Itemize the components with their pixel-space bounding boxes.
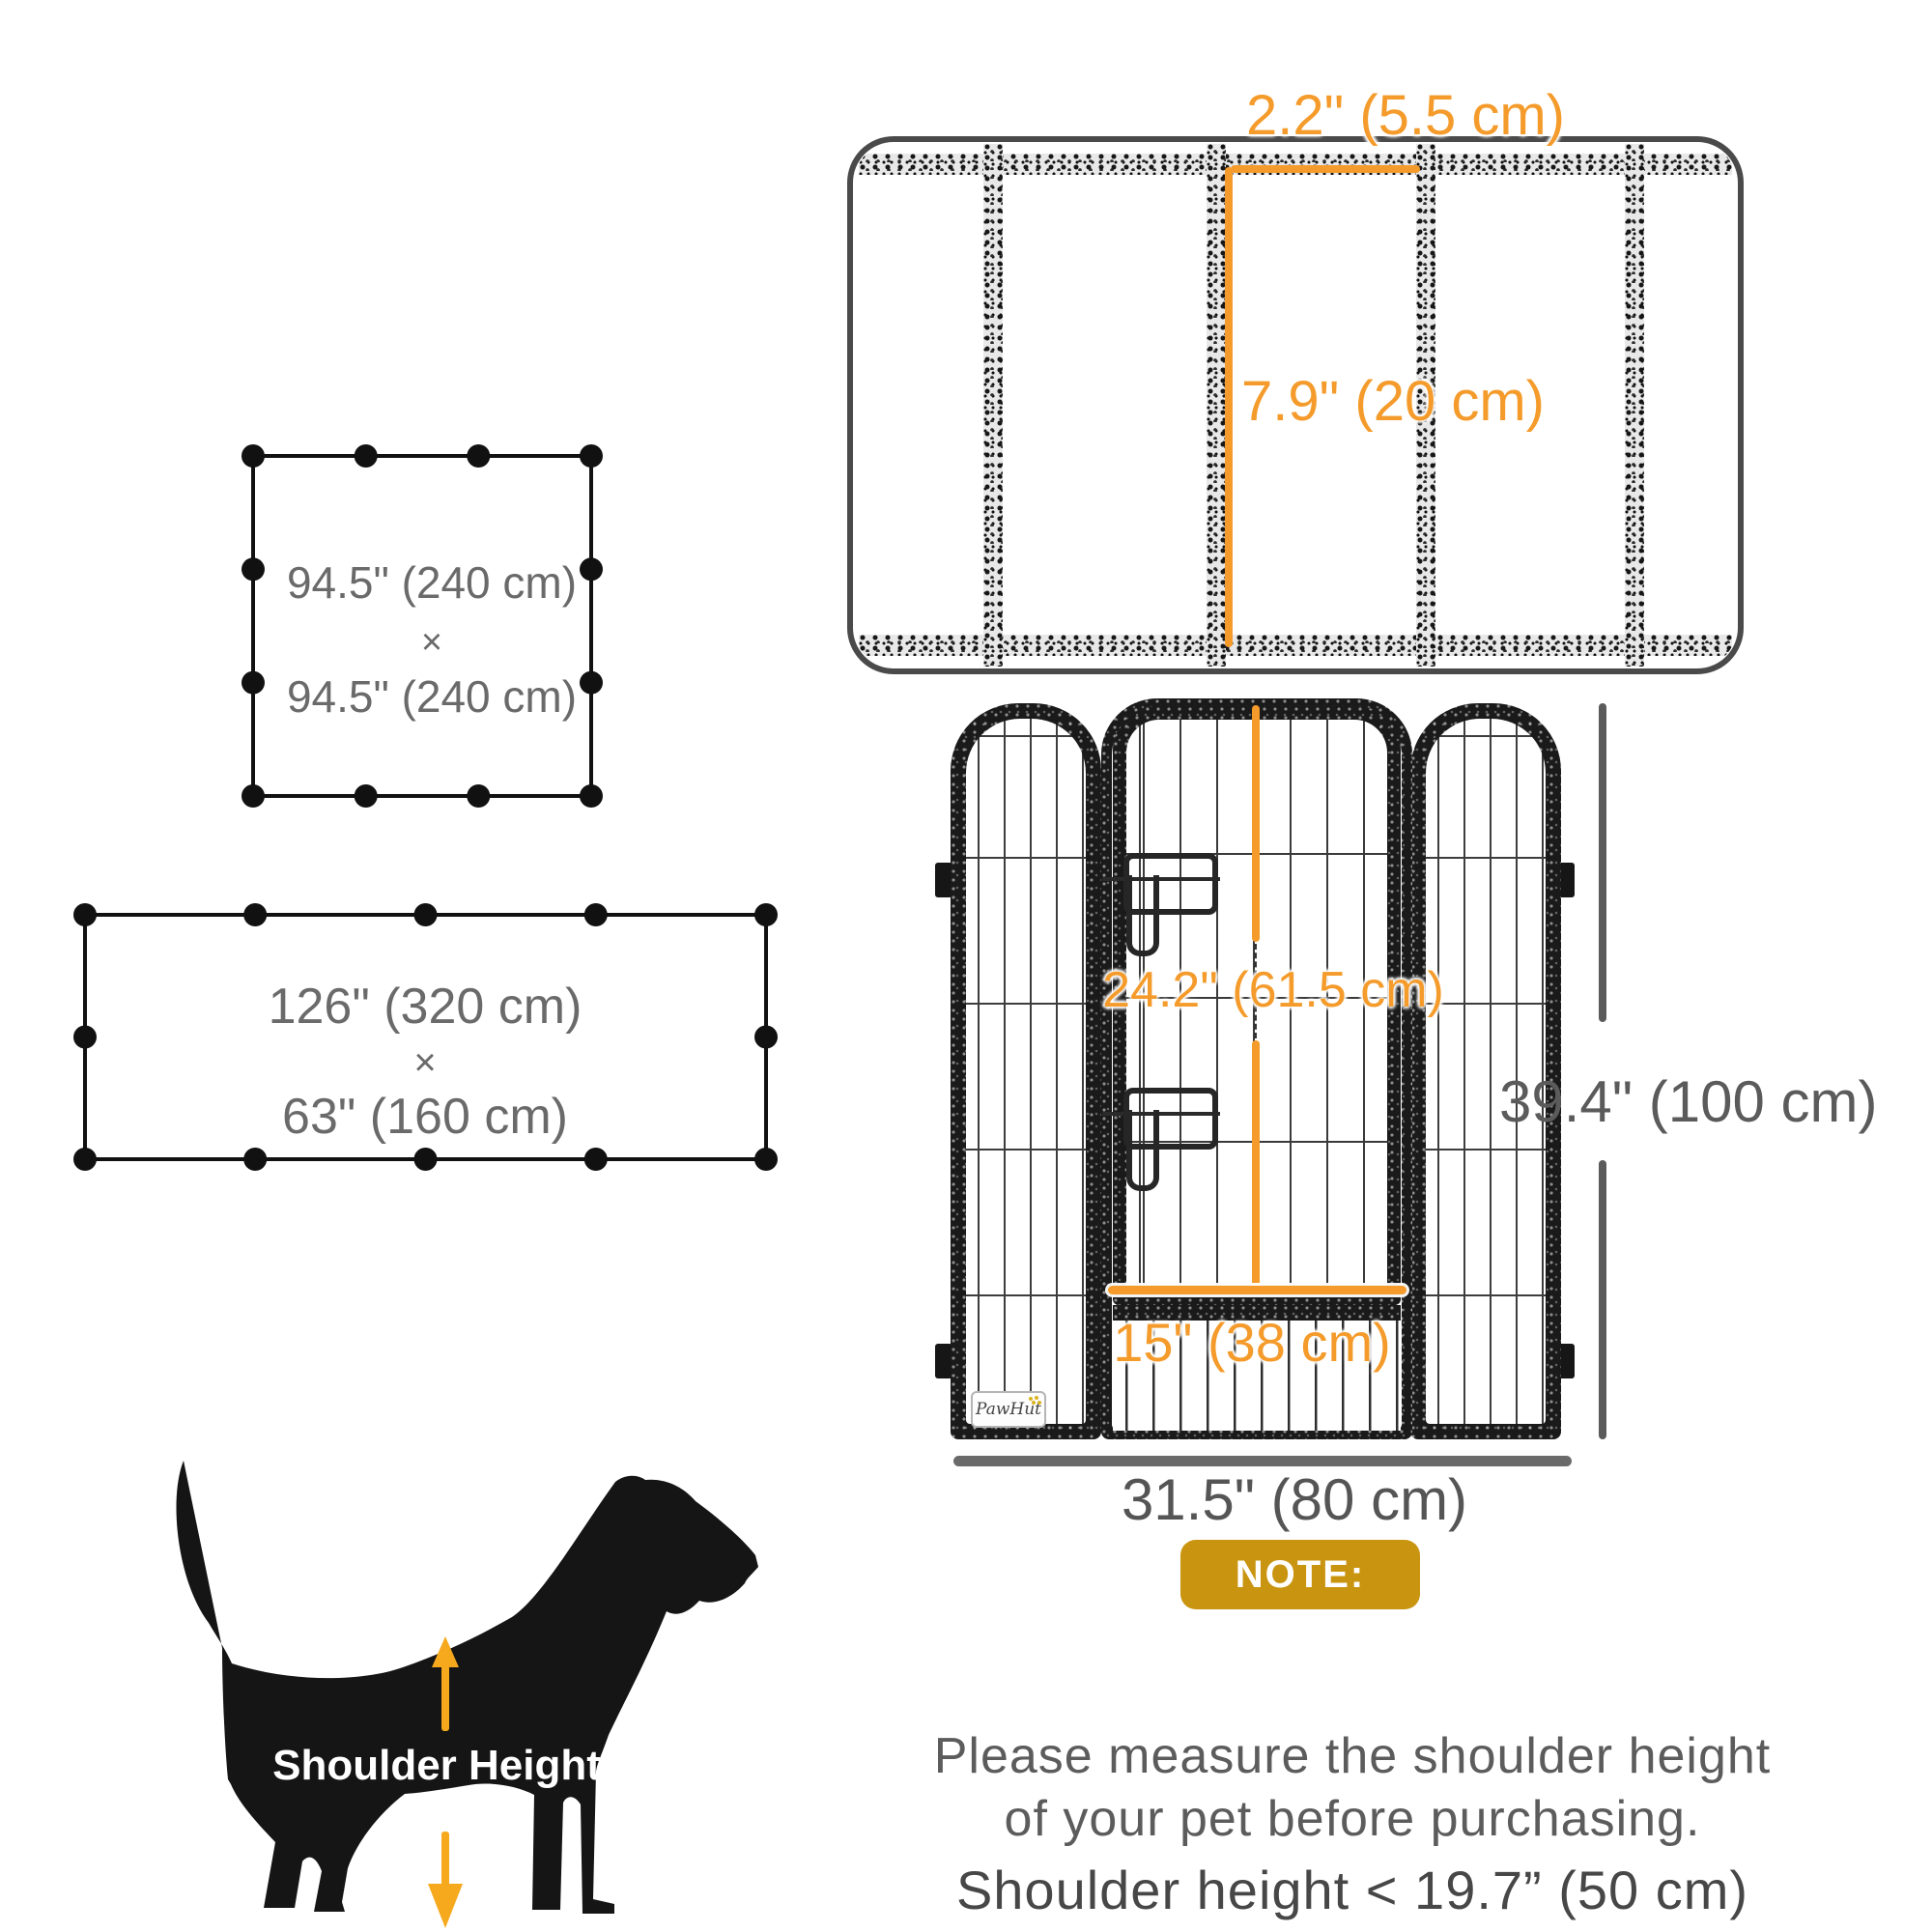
gap-width-measure-line xyxy=(1231,165,1420,173)
rect-width-label: 126" (320 cm) xyxy=(135,978,715,1036)
door-height-label: 24.2" (61.5 cm) xyxy=(983,961,1563,1019)
panel-width-measure-line xyxy=(953,1456,1572,1466)
brand-logo: PawHut xyxy=(971,1391,1046,1428)
panel-height-measure-line-top xyxy=(1599,703,1606,1022)
note-line-2: of your pet before purchasing. xyxy=(773,1790,1932,1848)
gap-width-label: 2.2" (5.5 cm) xyxy=(1116,83,1695,148)
shoulder-height-label: Shoulder Height xyxy=(272,1742,601,1789)
section-height-label: 7.9" (20 cm) xyxy=(1103,369,1683,434)
note-shoulder-height-limit: Shoulder height < 19.7” (50 cm) xyxy=(773,1859,1932,1921)
door-latch-handle xyxy=(1126,875,1159,956)
mesh-vertical-bar xyxy=(983,144,1003,667)
panel-width-label: 31.5" (80 cm) xyxy=(1053,1466,1536,1533)
product-dimension-diagram: 2.2" (5.5 cm) 7.9" (20 cm) 94.5" (240 cm… xyxy=(0,0,1932,1932)
dog-silhouette: Shoulder Height xyxy=(116,1449,792,1932)
rect-height-label: 63" (160 cm) xyxy=(135,1088,715,1146)
square-multiply-sign: × xyxy=(239,622,625,664)
door-height-measure-line-bottom xyxy=(1252,1040,1260,1288)
door-width-measure-line xyxy=(1108,1286,1406,1294)
down-arrow-icon xyxy=(428,1832,463,1928)
dog-body-shape xyxy=(176,1461,758,1914)
brand-logo-text: PawHut xyxy=(976,1400,1041,1419)
square-height-label: 94.5" (240 cm) xyxy=(239,670,625,723)
panel-height-label: 39.4" (100 cm) xyxy=(1499,1068,1877,1135)
rect-multiply-sign: × xyxy=(135,1041,715,1085)
square-width-label: 94.5" (240 cm) xyxy=(239,556,625,609)
paw-icon xyxy=(1029,1397,1033,1401)
door-height-measure-line-top xyxy=(1252,705,1260,942)
door-latch-handle xyxy=(1126,1110,1159,1191)
note-line-1: Please measure the shoulder height xyxy=(773,1727,1932,1785)
door-width-label: 15" (38 cm) xyxy=(1010,1311,1493,1374)
note-badge: NOTE: xyxy=(1180,1540,1420,1609)
panel-height-measure-line-bottom xyxy=(1599,1160,1606,1439)
